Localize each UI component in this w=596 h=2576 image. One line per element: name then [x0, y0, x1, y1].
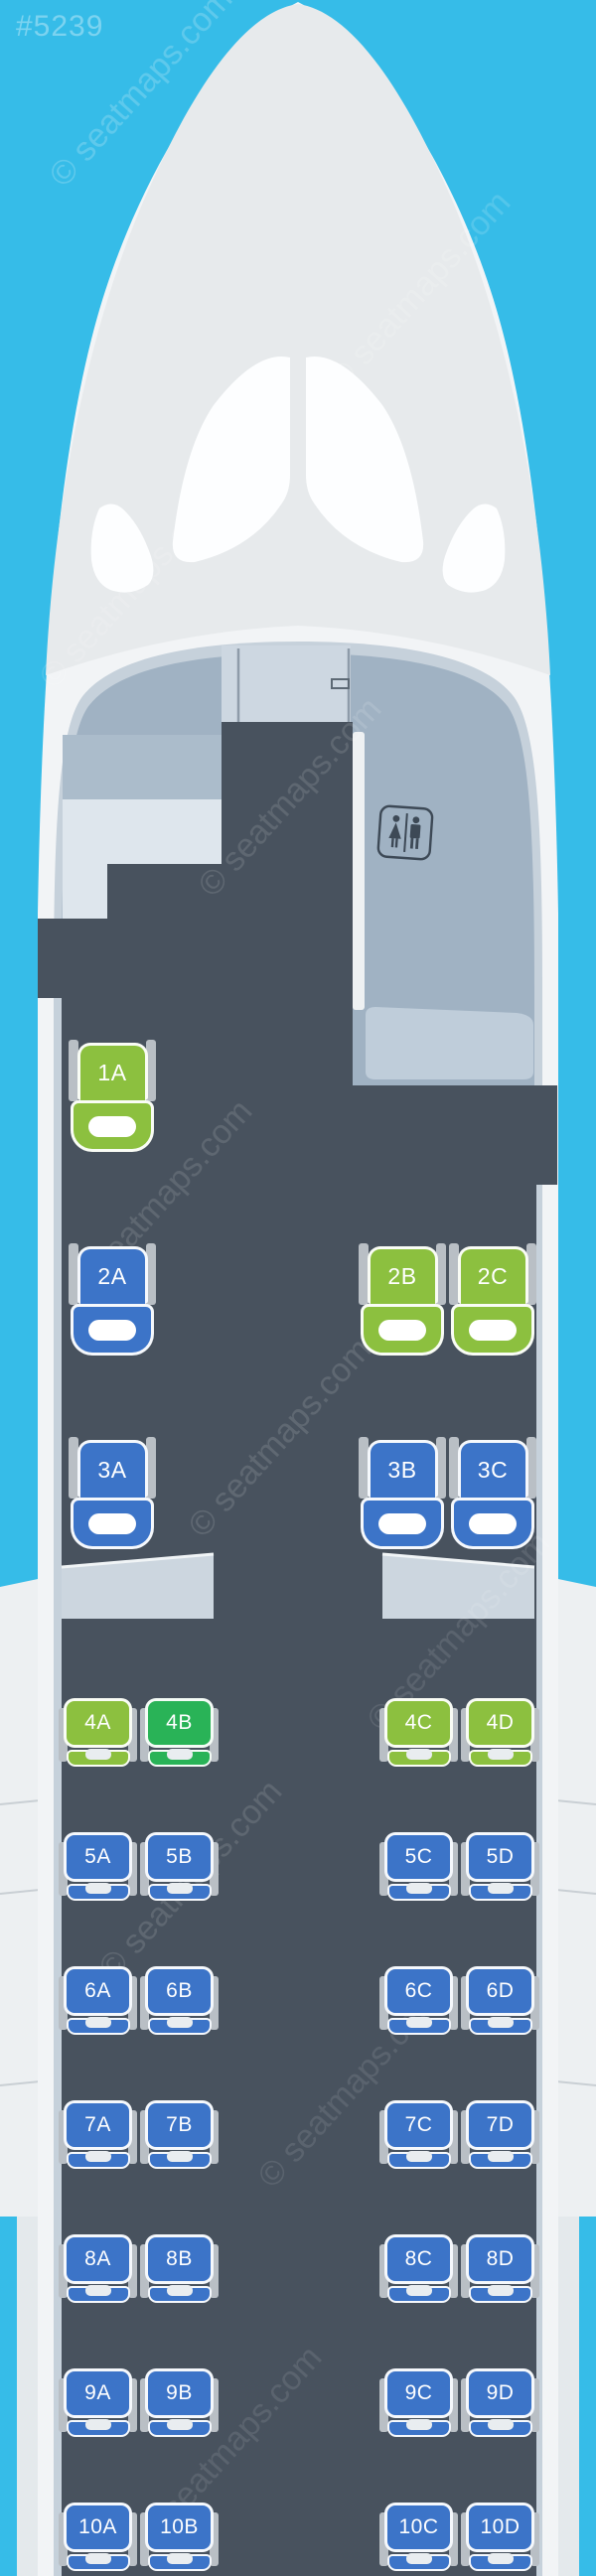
seat-7D[interactable]: 7D	[466, 2100, 534, 2170]
headrest-pill	[488, 1883, 514, 1894]
seat-label: 2A	[97, 1263, 126, 1290]
seat-label: 4D	[487, 1711, 515, 1735]
seat-10A[interactable]: 10A	[64, 2503, 132, 2572]
seat-8B[interactable]: 8B	[145, 2234, 214, 2304]
seat-cushion	[361, 1304, 444, 1356]
seat-label: 7A	[84, 2113, 111, 2137]
seat-base	[148, 2286, 212, 2303]
seat-4C[interactable]: 4C	[384, 1698, 453, 1768]
headrest-pill	[85, 2419, 111, 2430]
seat-label: 5A	[84, 1845, 111, 1869]
seat-label: 2B	[387, 1263, 416, 1290]
seat-5B[interactable]: 5B	[145, 1832, 214, 1902]
armrest-right	[146, 1243, 156, 1305]
seat-cushion	[361, 1498, 444, 1549]
right-nacelle	[557, 2217, 579, 2576]
seat-base	[469, 2152, 532, 2169]
seat-4A[interactable]: 4A	[64, 1698, 132, 1768]
seat-label: 5B	[166, 1845, 193, 1869]
seat-base	[67, 1884, 130, 1901]
galley-counter-upper	[63, 735, 222, 799]
armrest-right	[146, 1437, 156, 1499]
seat-label: 9C	[405, 2381, 433, 2405]
headrest-pill	[85, 2285, 111, 2296]
seat-cushion	[71, 1304, 154, 1356]
seat-cushion	[451, 1498, 534, 1549]
seat-8C[interactable]: 8C	[384, 2234, 453, 2304]
seat-4D[interactable]: 4D	[466, 1698, 534, 1768]
seatmap-canvas: #5239	[0, 0, 596, 2576]
headrest-pill	[469, 1320, 517, 1341]
seat-base	[387, 1884, 451, 1901]
seat-5A[interactable]: 5A	[64, 1832, 132, 1902]
seat-base	[387, 2554, 451, 2571]
seat-base	[148, 2554, 212, 2571]
seat-base	[67, 2018, 130, 2035]
seat-base	[67, 2420, 130, 2437]
seat-9D[interactable]: 9D	[466, 2368, 534, 2438]
headrest-pill	[488, 2017, 514, 2028]
headrest-pill	[85, 1749, 111, 1760]
headrest-pill	[488, 2151, 514, 2162]
seat-base	[469, 2554, 532, 2571]
seat-label: 8A	[84, 2247, 111, 2271]
headrest-pill	[406, 2285, 432, 2296]
seat-label: 6B	[166, 1979, 193, 2003]
seat-9C[interactable]: 9C	[384, 2368, 453, 2438]
seat-base	[469, 2286, 532, 2303]
headrest-pill	[167, 2017, 193, 2028]
headrest-pill	[85, 2151, 111, 2162]
seat-base	[387, 2420, 451, 2437]
galley-counter-side	[63, 866, 107, 919]
armrest-right	[146, 1040, 156, 1101]
seat-8A[interactable]: 8A	[64, 2234, 132, 2304]
seat-label: 7C	[405, 2113, 433, 2137]
seat-cushion	[71, 1100, 154, 1152]
seat-7C[interactable]: 7C	[384, 2100, 453, 2170]
headrest-pill	[488, 2285, 514, 2296]
seat-base	[469, 2420, 532, 2437]
headrest-pill	[406, 2151, 432, 2162]
armrest-right	[526, 1437, 536, 1499]
seat-3C[interactable]: 3C	[451, 1440, 534, 1549]
map-id-tag: #5239	[16, 10, 103, 44]
seat-7A[interactable]: 7A	[64, 2100, 132, 2170]
headrest-pill	[406, 1883, 432, 1894]
seat-label: 2C	[478, 1263, 508, 1290]
seat-label: 8B	[166, 2247, 193, 2271]
headrest-pill	[406, 2553, 432, 2564]
seat-label: 10C	[398, 2515, 438, 2539]
headrest-pill	[378, 1320, 426, 1341]
left-nacelle	[17, 2217, 39, 2576]
seat-base	[469, 2018, 532, 2035]
seat-10B[interactable]: 10B	[145, 2503, 214, 2572]
seat-10C[interactable]: 10C	[384, 2503, 453, 2572]
seat-8D[interactable]: 8D	[466, 2234, 534, 2304]
seat-label: 4B	[166, 1711, 193, 1735]
seat-10D[interactable]: 10D	[466, 2503, 534, 2572]
seat-5D[interactable]: 5D	[466, 1832, 534, 1902]
closet-monument	[366, 1007, 533, 1079]
seat-label: 6A	[84, 1979, 111, 2003]
seat-label: 3C	[478, 1457, 508, 1484]
seat-6C[interactable]: 6C	[384, 1966, 453, 2036]
seat-6B[interactable]: 6B	[145, 1966, 214, 2036]
headrest-pill	[167, 2553, 193, 2564]
seat-cushion	[71, 1498, 154, 1549]
headrest-pill	[406, 2017, 432, 2028]
seat-base	[148, 1750, 212, 1767]
seat-base	[67, 2286, 130, 2303]
headrest-pill	[167, 1883, 193, 1894]
headrest-pill	[167, 2151, 193, 2162]
seat-5C[interactable]: 5C	[384, 1832, 453, 1902]
seat-label: 3B	[387, 1457, 416, 1484]
left-bulkhead-slab	[62, 1554, 214, 1619]
seat-label: 10D	[480, 2515, 520, 2539]
galley-counter-lower	[63, 799, 222, 866]
seat-label: 4C	[405, 1711, 433, 1735]
seat-base	[469, 1884, 532, 1901]
seat-base	[387, 2286, 451, 2303]
seat-label: 7D	[487, 2113, 515, 2137]
seat-label: 9A	[84, 2381, 111, 2405]
seat-label: 5C	[405, 1845, 433, 1869]
seat-2B[interactable]: 2B	[361, 1246, 444, 1356]
seat-6A[interactable]: 6A	[64, 1966, 132, 2036]
headrest-pill	[167, 1749, 193, 1760]
seat-base	[148, 1884, 212, 1901]
seat-base	[67, 2554, 130, 2571]
seat-3B[interactable]: 3B	[361, 1440, 444, 1549]
seat-label: 6C	[405, 1979, 433, 2003]
headrest-pill	[88, 1513, 136, 1534]
headrest-pill	[406, 1749, 432, 1760]
seat-1A[interactable]: 1A	[71, 1043, 154, 1152]
seat-base	[67, 2152, 130, 2169]
seat-label: 3A	[97, 1457, 126, 1484]
seat-9B[interactable]: 9B	[145, 2368, 214, 2438]
seat-base	[67, 1750, 130, 1767]
seat-label: 10A	[78, 2515, 117, 2539]
headrest-pill	[469, 1513, 517, 1534]
seat-7B[interactable]: 7B	[145, 2100, 214, 2170]
headrest-pill	[167, 2285, 193, 2296]
headrest-pill	[88, 1320, 136, 1341]
headrest-pill	[406, 2419, 432, 2430]
seat-label: 8D	[487, 2247, 515, 2271]
seat-label: 10B	[160, 2515, 199, 2539]
seat-label: 5D	[487, 1845, 515, 1869]
headrest-pill	[85, 1883, 111, 1894]
seat-label: 4A	[84, 1711, 111, 1735]
armrest-right	[436, 1437, 446, 1499]
seat-6D[interactable]: 6D	[466, 1966, 534, 2036]
headrest-pill	[85, 2553, 111, 2564]
seat-label: 1A	[97, 1060, 126, 1086]
seat-base	[387, 2018, 451, 2035]
seat-label: 9D	[487, 2381, 515, 2405]
headrest-pill	[167, 2419, 193, 2430]
headrest-pill	[488, 2419, 514, 2430]
armrest-right	[526, 1243, 536, 1305]
seat-base	[469, 1750, 532, 1767]
seat-3A[interactable]: 3A	[71, 1440, 154, 1549]
seat-label: 7B	[166, 2113, 193, 2137]
headrest-pill	[85, 2017, 111, 2028]
headrest-pill	[88, 1116, 136, 1137]
seat-2C[interactable]: 2C	[451, 1246, 534, 1356]
headrest-pill	[488, 2553, 514, 2564]
headrest-pill	[488, 1749, 514, 1760]
armrest-right	[436, 1243, 446, 1305]
seat-9A[interactable]: 9A	[64, 2368, 132, 2438]
seat-base	[387, 1750, 451, 1767]
seat-cushion	[451, 1304, 534, 1356]
seat-base	[148, 2018, 212, 2035]
lavatory-wall	[353, 732, 365, 1010]
seat-base	[148, 2420, 212, 2437]
seat-4B[interactable]: 4B	[145, 1698, 214, 1768]
seat-base	[387, 2152, 451, 2169]
seat-label: 9B	[166, 2381, 193, 2405]
cockpit-door	[222, 645, 351, 722]
seat-label: 6D	[487, 1979, 515, 2003]
seat-label: 8C	[405, 2247, 433, 2271]
seat-base	[148, 2152, 212, 2169]
seat-2A[interactable]: 2A	[71, 1246, 154, 1356]
headrest-pill	[378, 1513, 426, 1534]
